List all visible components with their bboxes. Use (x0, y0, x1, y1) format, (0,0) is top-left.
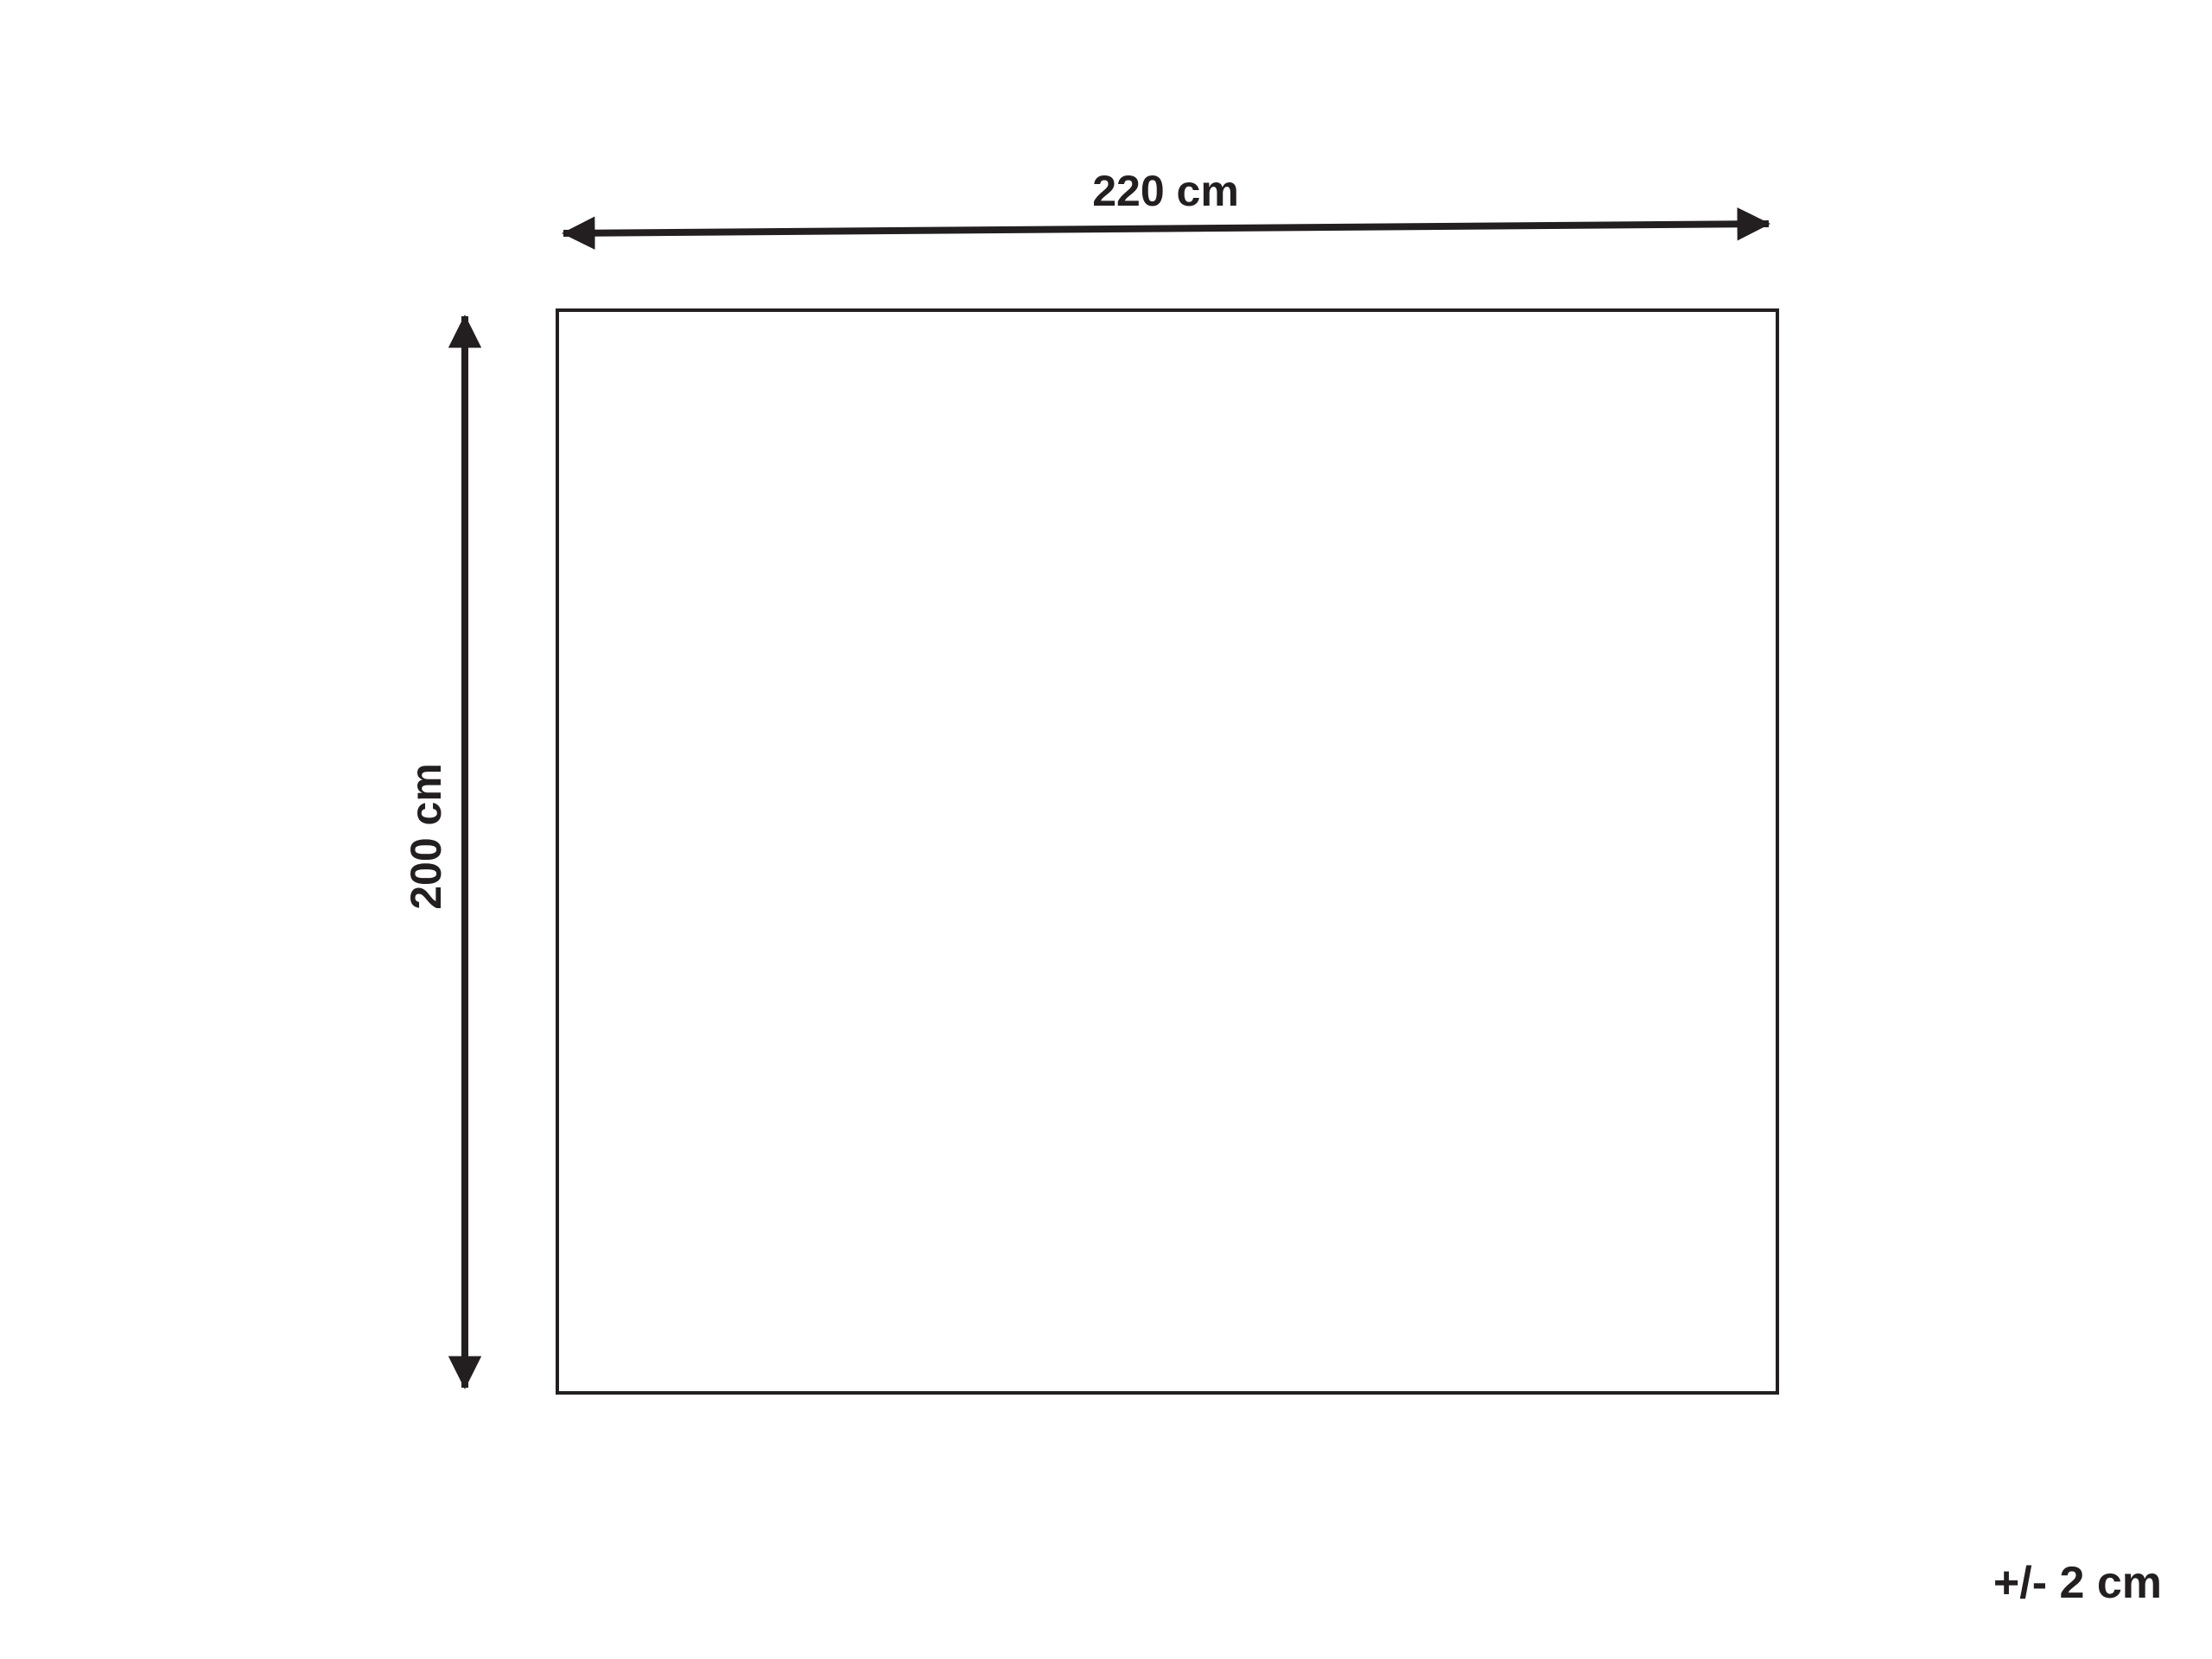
product-outline-rect (557, 310, 1777, 1393)
width-dimension-label: 220 cm (1092, 169, 1239, 213)
dimension-diagram: 220 cm 200 cm +/- 2 cm (0, 0, 2212, 1659)
tolerance-label: +/- 2 cm (1993, 1560, 2162, 1605)
height-dimension-label: 200 cm (404, 763, 448, 910)
width-dimension-arrow (563, 224, 1769, 233)
dimension-diagram-drawing (0, 0, 2212, 1659)
